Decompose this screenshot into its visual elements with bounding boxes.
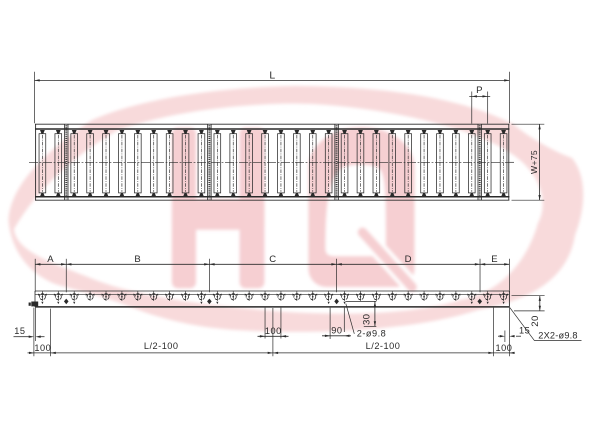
svg-text:L: L xyxy=(269,70,275,82)
svg-text:100: 100 xyxy=(495,343,512,353)
svg-text:15: 15 xyxy=(14,326,25,336)
svg-text:W+75: W+75 xyxy=(529,150,539,174)
svg-text:L/2-100: L/2-100 xyxy=(366,341,401,351)
svg-text:D: D xyxy=(405,254,412,265)
svg-text:100: 100 xyxy=(265,326,282,336)
svg-text:C: C xyxy=(269,254,276,265)
svg-text:20: 20 xyxy=(530,315,541,326)
svg-text:30: 30 xyxy=(362,314,373,325)
svg-text:A: A xyxy=(47,254,54,265)
svg-text:2-ø9.8: 2-ø9.8 xyxy=(357,329,387,339)
svg-text:L/2-100: L/2-100 xyxy=(144,341,179,351)
svg-text:2X2-ø9.8: 2X2-ø9.8 xyxy=(538,331,577,341)
svg-text:100: 100 xyxy=(34,343,51,353)
svg-text:P: P xyxy=(476,85,483,96)
svg-text:E: E xyxy=(491,254,498,265)
svg-text:B: B xyxy=(134,254,141,265)
svg-text:90: 90 xyxy=(331,326,342,336)
